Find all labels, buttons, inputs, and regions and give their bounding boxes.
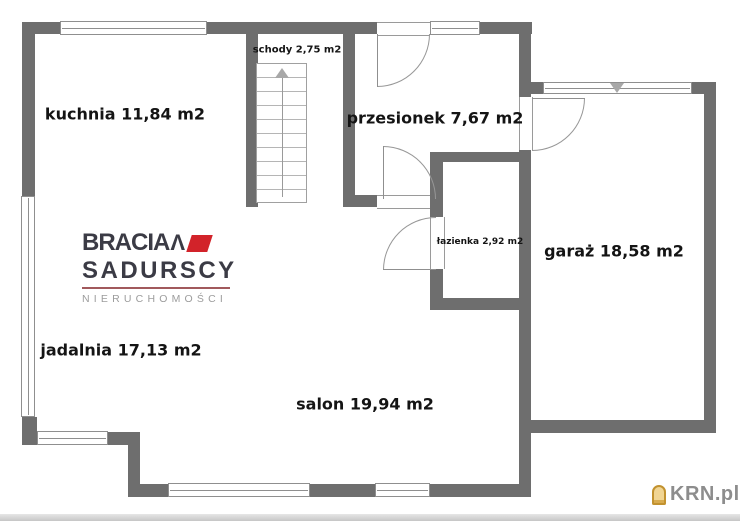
wall: [704, 82, 716, 433]
garage-gate-marker-icon: [610, 83, 624, 93]
room-label-lazienka: łazienka 2,92 m2: [437, 237, 523, 247]
window: [60, 21, 207, 35]
agency-logo-divider: [82, 287, 230, 289]
door-swing-arc: [383, 146, 436, 199]
agency-logo-row1: BRACIA Λ: [82, 230, 237, 256]
krn-house-icon: [652, 485, 666, 505]
window: [21, 196, 35, 417]
door-swing-arc: [532, 98, 585, 151]
window: [375, 483, 430, 497]
wall: [22, 22, 35, 196]
door-leaf: [383, 269, 436, 270]
room-label-jadalnia: jadalnia 17,13 m2: [40, 341, 201, 360]
door-leaf: [532, 98, 585, 99]
stair-direction-line: [282, 71, 283, 197]
wall: [531, 420, 716, 433]
room-label-kuchnia: kuchnia 11,84 m2: [45, 105, 205, 124]
door-leaf: [383, 146, 384, 199]
room-label-garaz: garaż 18,58 m2: [544, 242, 684, 261]
door-leaf: [377, 34, 378, 87]
krn-watermark-text: KRN.pl: [670, 483, 740, 506]
room-label-schody: schody 2,75 m2: [253, 45, 342, 56]
door-swing-arc: [377, 34, 430, 87]
wall: [128, 443, 140, 489]
wall: [343, 195, 377, 207]
stair-up-arrow-icon: [275, 68, 289, 78]
room-label-salon: salon 19,94 m2: [296, 395, 434, 414]
room-label-przesionek: przesionek 7,67 m2: [347, 109, 524, 128]
wall: [435, 152, 531, 162]
window: [430, 21, 480, 35]
wall: [519, 150, 531, 497]
wall: [435, 298, 531, 310]
window: [168, 483, 310, 497]
agency-logo: BRACIA Λ SADURSCY NIERUCHOMOŚCI: [82, 230, 237, 305]
wall: [531, 82, 543, 94]
wall: [519, 22, 531, 97]
agency-logo-subtitle: NIERUCHOMOŚCI: [82, 293, 237, 305]
door-swing-arc: [383, 217, 436, 270]
image-edge-artifact: [0, 514, 740, 521]
agency-logo-roof-icon: [186, 235, 213, 252]
agency-logo-caret-icon: Λ: [170, 232, 185, 254]
window: [37, 431, 108, 445]
agency-logo-name-top: BRACIA: [82, 231, 169, 255]
agency-logo-name-bottom: SADURSCY: [82, 259, 237, 283]
floor-plan: BRACIA Λ SADURSCY NIERUCHOMOŚCI KRN.pl k…: [0, 0, 740, 521]
krn-watermark: KRN.pl: [652, 483, 740, 506]
